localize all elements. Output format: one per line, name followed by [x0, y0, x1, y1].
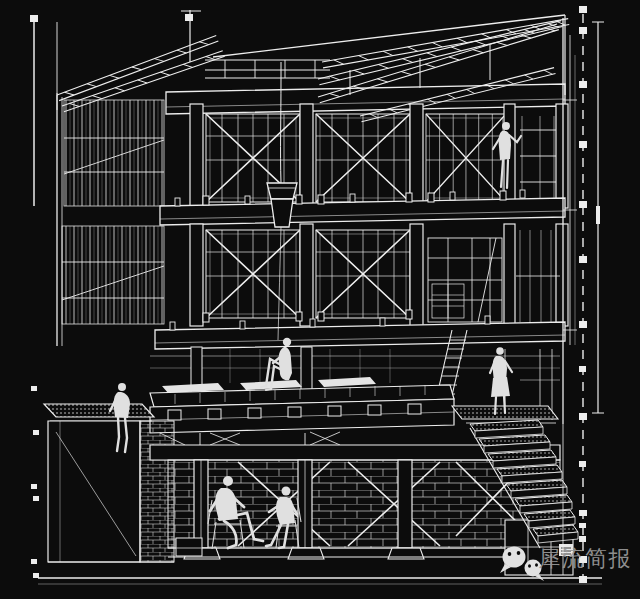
- terrace: [44, 404, 174, 562]
- right-guide-marks: [579, 6, 604, 583]
- watermark-text: 犀流简报: [538, 546, 632, 572]
- left-guide-marks: [30, 15, 39, 578]
- floor-slab-1: [160, 190, 565, 225]
- top-floor: [190, 104, 568, 208]
- middle-floor: [190, 224, 568, 326]
- figure-standing-landing: [490, 347, 512, 414]
- figure-standing-topfloor: [493, 122, 521, 188]
- ground-line: [38, 578, 602, 584]
- shelf-rack: [428, 238, 502, 322]
- left-stud-wall: [57, 95, 164, 346]
- screenshot-root: 犀流简报: [0, 0, 640, 599]
- section-drawing: [0, 0, 640, 599]
